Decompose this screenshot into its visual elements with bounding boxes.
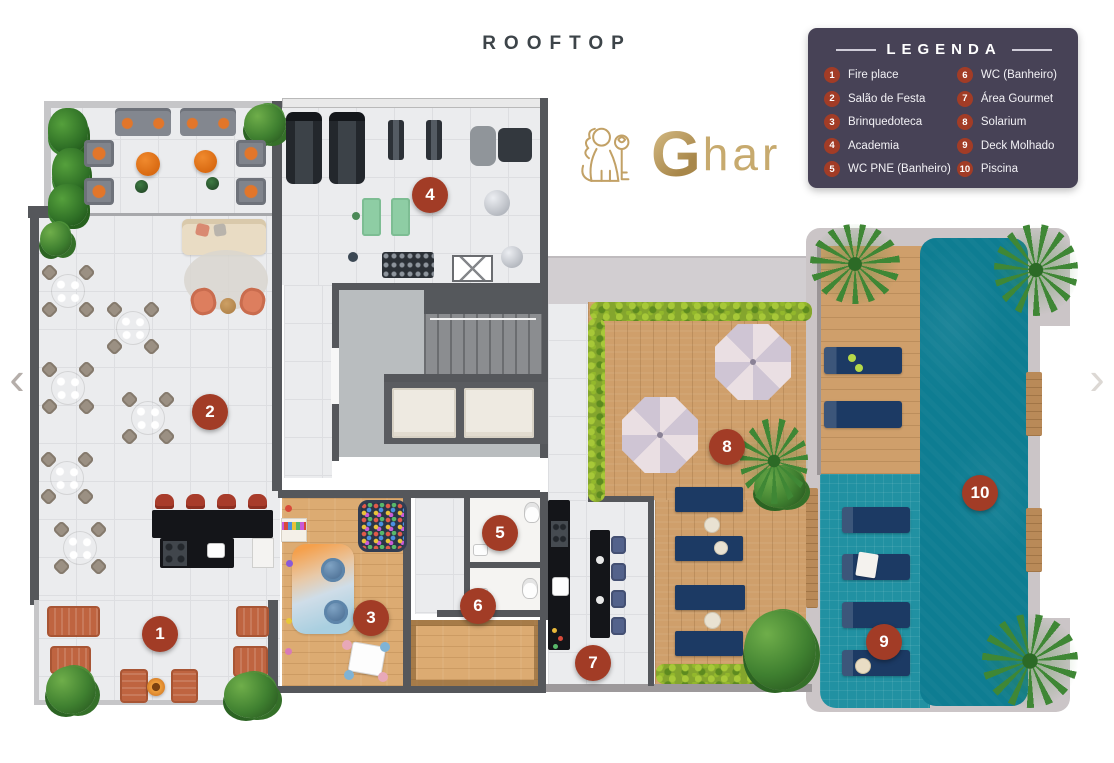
dumbbell-rack bbox=[382, 252, 434, 278]
wet-deck-lounger bbox=[842, 602, 910, 628]
toy-shelf bbox=[281, 518, 307, 542]
sofa bbox=[115, 108, 171, 136]
walkway-floor bbox=[548, 302, 590, 500]
plate bbox=[596, 596, 604, 604]
plate bbox=[596, 556, 604, 564]
dining-set bbox=[39, 262, 97, 320]
bar-stool bbox=[611, 563, 626, 581]
floor-plan: 12345678910 bbox=[0, 0, 1114, 763]
sun-lounger bbox=[824, 347, 902, 374]
plan-marker-5: 5 bbox=[482, 515, 518, 551]
patio-umbrella bbox=[622, 397, 698, 473]
kids-chair bbox=[380, 642, 390, 652]
stair-rail bbox=[430, 318, 536, 320]
plan-marker-1: 1 bbox=[142, 616, 178, 652]
patio-umbrella bbox=[715, 324, 791, 400]
bottle bbox=[552, 628, 557, 633]
plan-marker-6: 6 bbox=[460, 588, 496, 624]
bar-stool bbox=[611, 536, 626, 554]
bar-stool bbox=[611, 617, 626, 635]
dining-set bbox=[104, 299, 162, 357]
pool-bench-1 bbox=[1026, 372, 1042, 436]
ball bbox=[848, 354, 856, 362]
sofa bbox=[180, 108, 236, 136]
cushion bbox=[195, 223, 210, 237]
kettlebell bbox=[348, 252, 358, 262]
armchair bbox=[236, 140, 266, 167]
stove bbox=[163, 541, 187, 566]
ball bbox=[855, 364, 863, 372]
bar-stool bbox=[186, 494, 205, 509]
dining-set bbox=[119, 389, 177, 447]
wet-deck-wood-strip bbox=[806, 488, 818, 608]
center-wall bbox=[272, 101, 282, 491]
bar-stool bbox=[611, 590, 626, 608]
core-door bbox=[331, 348, 339, 404]
kids-chair bbox=[342, 640, 352, 650]
kids-chair bbox=[344, 670, 354, 680]
gym-machine bbox=[470, 126, 496, 166]
corridor-wood-floor bbox=[410, 620, 540, 686]
pouf bbox=[324, 600, 348, 624]
treadmill bbox=[329, 112, 365, 184]
plan-marker-7: 7 bbox=[575, 645, 611, 681]
elevator-wall bbox=[384, 374, 548, 382]
south-wall bbox=[278, 686, 546, 693]
toilet bbox=[524, 502, 540, 523]
treadmill bbox=[286, 112, 322, 184]
plan-marker-9: 9 bbox=[866, 624, 902, 660]
exercise-ball bbox=[501, 246, 523, 268]
side-table bbox=[704, 612, 721, 629]
armchair bbox=[84, 178, 114, 205]
toy bbox=[286, 560, 293, 567]
tray bbox=[855, 658, 871, 674]
dining-set bbox=[38, 449, 96, 507]
sun-lounger bbox=[824, 401, 902, 428]
kettlebell bbox=[352, 212, 360, 220]
wc-right-wall bbox=[540, 492, 548, 620]
pouf bbox=[135, 180, 148, 193]
armchair bbox=[84, 140, 114, 167]
lounge-chair bbox=[120, 669, 148, 703]
terrace-top-wall bbox=[44, 101, 280, 108]
yoga-mat bbox=[362, 198, 381, 236]
elevator-cab-2 bbox=[464, 388, 534, 438]
planter bbox=[48, 184, 88, 226]
cushion bbox=[213, 223, 227, 237]
plan-marker-8: 8 bbox=[709, 429, 745, 465]
lounge-chair bbox=[171, 669, 198, 703]
lounge-chair bbox=[236, 606, 269, 637]
towel bbox=[855, 552, 879, 579]
exercise-ball bbox=[484, 190, 510, 216]
toy bbox=[285, 505, 292, 512]
fire-left-edge bbox=[34, 600, 39, 704]
dining-set bbox=[39, 359, 97, 417]
elevator-cab-1 bbox=[392, 388, 456, 438]
pouf bbox=[321, 558, 345, 582]
plan-marker-2: 2 bbox=[192, 394, 228, 430]
plan-marker-4: 4 bbox=[412, 177, 448, 213]
play-mat bbox=[292, 544, 354, 634]
gourmet-stove bbox=[551, 521, 568, 547]
yoga-mat bbox=[391, 198, 410, 236]
fire-pit bbox=[147, 678, 165, 696]
hedge bbox=[588, 318, 605, 502]
potted-plant bbox=[744, 610, 816, 690]
potted-plant bbox=[244, 104, 286, 144]
potted-plant bbox=[224, 672, 278, 718]
stair-landing bbox=[424, 288, 542, 314]
deck-table bbox=[675, 536, 743, 561]
rooftop-floorplan-view: ROOFTOP ‹ › G har LEGENDA 1Fire place2Sa… bbox=[0, 0, 1114, 763]
deck-table bbox=[675, 585, 745, 610]
kitchen-counter bbox=[152, 510, 273, 538]
pouf bbox=[206, 177, 219, 190]
side-table bbox=[220, 298, 236, 314]
bar-stool bbox=[217, 494, 236, 509]
palm-tree bbox=[740, 418, 808, 504]
bar-stool bbox=[248, 494, 267, 509]
deck-table bbox=[675, 487, 743, 512]
bar-stool bbox=[155, 494, 174, 509]
ball-pit bbox=[358, 500, 407, 552]
armchair bbox=[236, 178, 266, 205]
wc-partition-wall bbox=[470, 562, 540, 568]
dining-set bbox=[51, 519, 109, 577]
toy bbox=[285, 648, 292, 655]
pool-bench-2 bbox=[1026, 508, 1042, 572]
corridor-right-wall bbox=[538, 620, 546, 686]
bar-table bbox=[590, 530, 610, 638]
plan-marker-3: 3 bbox=[353, 600, 389, 636]
bar-cart bbox=[252, 538, 274, 568]
hedge bbox=[590, 302, 812, 321]
deck-table bbox=[675, 631, 743, 656]
core-corridor-floor bbox=[284, 285, 332, 478]
side-table bbox=[704, 517, 720, 533]
wet-deck-lounger bbox=[842, 507, 910, 533]
potted-plant bbox=[40, 222, 72, 256]
weight-bench bbox=[388, 120, 404, 160]
deck-pocket-wall-v bbox=[648, 496, 654, 686]
side-table bbox=[714, 541, 728, 555]
palm-tree bbox=[810, 224, 900, 304]
bottle bbox=[553, 644, 558, 649]
toilet bbox=[522, 578, 538, 599]
potted-plant bbox=[46, 666, 96, 714]
weight-bench bbox=[426, 120, 442, 160]
deck-concrete-band bbox=[548, 256, 812, 304]
service-shaft bbox=[452, 255, 493, 282]
palm-tree bbox=[994, 224, 1078, 316]
kitchen-sink bbox=[207, 543, 225, 558]
toy bbox=[286, 618, 292, 624]
plan-marker-10: 10 bbox=[962, 475, 998, 511]
washbasin bbox=[473, 544, 488, 556]
gourmet-sink bbox=[552, 577, 569, 596]
kids-chair bbox=[378, 672, 388, 682]
coffee-table bbox=[194, 150, 217, 173]
party-left-wall bbox=[30, 215, 39, 605]
lounge-chair bbox=[47, 606, 100, 637]
gym-window-band bbox=[282, 98, 542, 108]
gym-machine bbox=[498, 128, 532, 162]
palm-tree bbox=[982, 614, 1078, 708]
bottle bbox=[558, 636, 563, 641]
coffee-table bbox=[136, 152, 160, 176]
